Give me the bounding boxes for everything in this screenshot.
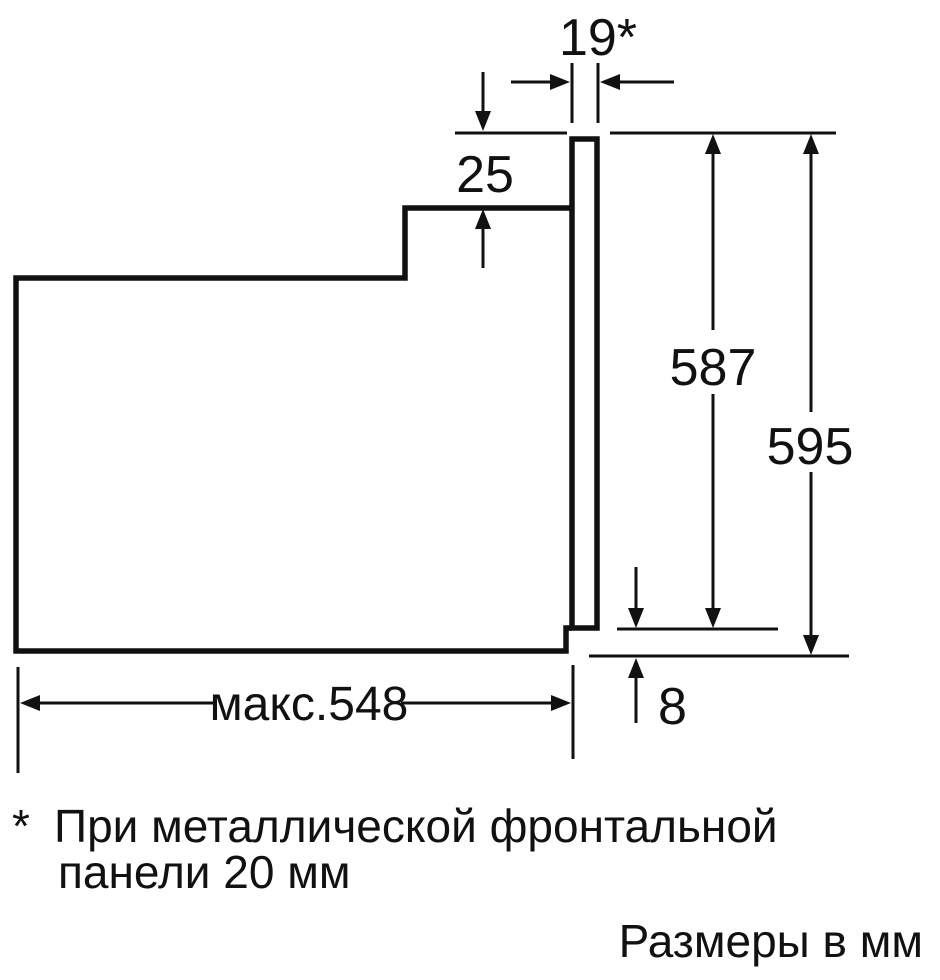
arrow-down-icon (475, 111, 491, 131)
footnote: * При металлической фронтальной панели 2… (12, 800, 778, 898)
arrow-right-icon (551, 695, 571, 711)
arrow-down-icon (803, 635, 819, 655)
oven-body-outline (16, 208, 572, 651)
dimension-top-clearance-label: 25 (456, 146, 514, 204)
dimension-max-depth-label: макс.548 (210, 678, 409, 731)
arrow-up-icon (628, 658, 644, 678)
footnote-line2: панели 20 мм (58, 846, 350, 898)
dimension-max-depth: макс.548 (18, 665, 573, 773)
arrow-down-icon (628, 608, 644, 628)
arrow-down-icon (705, 608, 721, 628)
arrow-up-icon (803, 134, 819, 154)
footnote-line1: При металлической фронтальной (54, 800, 778, 852)
arrow-up-icon (705, 134, 721, 154)
dimension-case-height-label: 587 (670, 339, 757, 397)
dimension-front-gap-label: 19* (559, 9, 637, 67)
arrow-left-icon (20, 695, 40, 711)
footnote-marker: * (12, 800, 30, 852)
arrow-up-icon (475, 209, 491, 229)
dimension-bottom-inset: 8 (628, 567, 687, 736)
diagram-canvas: 19* 25 587 595 8 (0, 0, 940, 980)
dimension-case-height: 587 (670, 134, 757, 628)
dimension-total-height: 595 (767, 134, 854, 655)
front-panel (572, 139, 597, 628)
arrow-right-icon (550, 74, 570, 90)
oven-installation-diagram: 19* 25 587 595 8 (0, 0, 940, 980)
dimension-top-clearance: 25 (456, 72, 514, 268)
oven-body-path (16, 208, 572, 651)
arrow-left-icon (600, 74, 620, 90)
dimension-bottom-inset-label: 8 (658, 678, 687, 736)
dimension-front-gap: 19* (511, 9, 674, 123)
units-caption: Размеры в мм (619, 915, 923, 967)
dimension-total-height-label: 595 (767, 418, 854, 476)
